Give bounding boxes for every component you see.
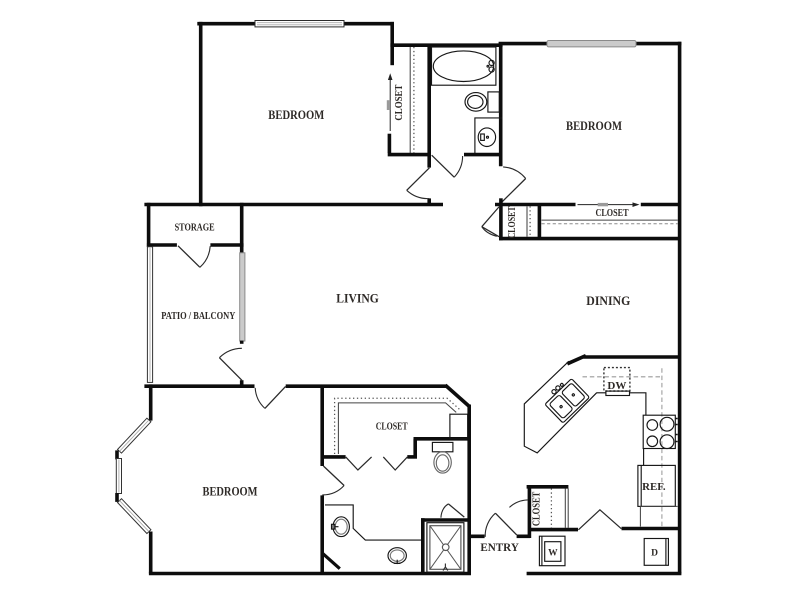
svg-text:STORAGE: STORAGE — [175, 221, 215, 233]
svg-text:DW: DW — [607, 381, 627, 392]
svg-text:ENTRY: ENTRY — [480, 542, 519, 554]
svg-text:BEDROOM: BEDROOM — [566, 119, 622, 133]
svg-text:CLOSET: CLOSET — [596, 208, 629, 219]
svg-text:BEDROOM: BEDROOM — [268, 108, 324, 122]
svg-text:CLOSET: CLOSET — [532, 491, 543, 526]
svg-text:CLOSET: CLOSET — [394, 85, 405, 121]
svg-text:LIVING: LIVING — [336, 292, 379, 306]
svg-text:REF.: REF. — [642, 482, 666, 493]
svg-text:BEDROOM: BEDROOM — [203, 484, 258, 498]
svg-text:D: D — [651, 549, 658, 559]
svg-text:DINING: DINING — [586, 294, 630, 308]
svg-text:W: W — [548, 548, 558, 558]
svg-text:CLOSET: CLOSET — [507, 206, 518, 238]
svg-text:CLOSET: CLOSET — [376, 422, 408, 433]
svg-text:PATIO / BALCONY: PATIO / BALCONY — [161, 310, 235, 322]
